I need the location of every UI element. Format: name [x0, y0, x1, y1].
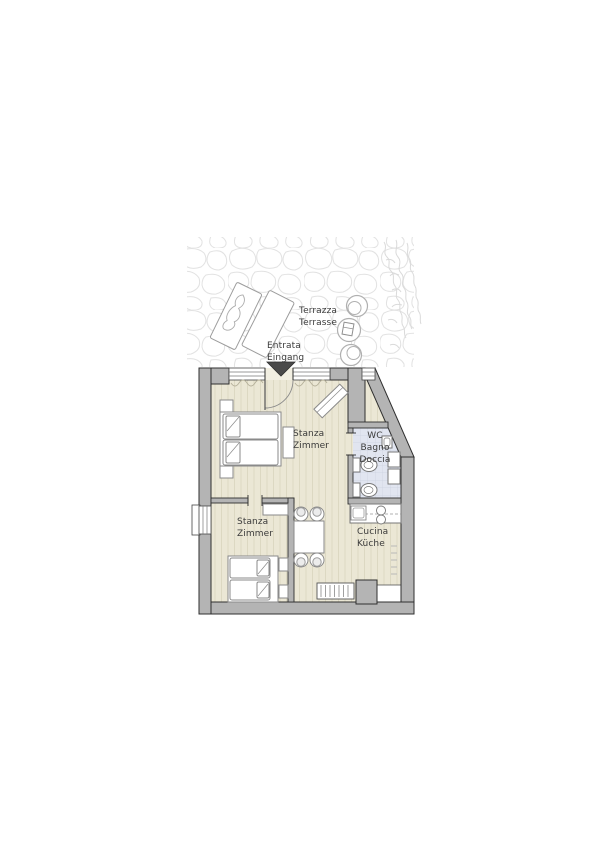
- dining-chair: [294, 553, 308, 567]
- bathroom-label: WC Bagno Doccia: [352, 430, 398, 466]
- terrace-label-line2: Terrasse: [299, 317, 337, 329]
- bathroom-label-line2: Bagno: [352, 442, 398, 454]
- kitchen-label: Cucina Küche: [357, 526, 388, 550]
- bedroom1-label: Stanza Zimmer: [293, 428, 329, 452]
- nightstand: [220, 466, 233, 478]
- wall-right: [401, 457, 414, 614]
- dining-chair: [310, 553, 324, 567]
- bed-double-main: [220, 400, 281, 478]
- nightstand: [279, 558, 288, 571]
- window-top-corner: [362, 368, 375, 380]
- terrace-label: Terrazza Terrasse: [299, 305, 337, 329]
- bedroom2-label-line2: Zimmer: [237, 528, 273, 540]
- wall-bedroom2-top-a: [211, 498, 248, 503]
- dining-chair: [294, 507, 308, 521]
- bidet: [353, 483, 377, 497]
- boiler-unit: [388, 469, 400, 484]
- nightstand: [220, 400, 233, 412]
- window-top-right: [293, 368, 330, 380]
- terrace-chair-2: [341, 345, 362, 366]
- dining-table: [294, 521, 324, 553]
- kitchen-counter: [350, 504, 401, 524]
- entrance-label-line2: Eingang: [267, 352, 304, 364]
- window-left-bedroom2: [192, 505, 211, 535]
- wall-left: [199, 368, 211, 614]
- entrance-label-line1: Entrata: [267, 340, 304, 352]
- terrace-chair-1: [347, 296, 368, 317]
- kitchen-label-line1: Cucina: [357, 526, 388, 538]
- wall-notch: [356, 580, 377, 604]
- nightstand: [279, 585, 288, 598]
- wall-bathroom-top: [348, 422, 388, 428]
- pillow: [226, 416, 240, 437]
- bedroom1-label-line1: Stanza: [293, 428, 329, 440]
- bathroom-label-line1: WC: [352, 430, 398, 442]
- bathroom-label-line3: Doccia: [352, 454, 398, 466]
- bedroom2-label-line1: Stanza: [237, 516, 273, 528]
- terrace-table: [338, 319, 361, 342]
- floor-plan-canvas: Terrazza Terrasse Entrata Eingang Stanza…: [0, 0, 606, 856]
- kitchen-sink: [351, 506, 366, 520]
- wall-bathroom-bottom: [348, 498, 401, 504]
- kitchen-label-line2: Küche: [357, 538, 388, 550]
- terrace-label-line1: Terrazza: [299, 305, 337, 317]
- floor-niche: [377, 585, 401, 602]
- window-top-left: [229, 368, 265, 380]
- dining-chair: [310, 507, 324, 521]
- pillow: [226, 442, 240, 463]
- bedroom1-label-line2: Zimmer: [293, 440, 329, 452]
- entrance-label: Entrata Eingang: [267, 340, 304, 364]
- radiator: [317, 583, 354, 599]
- bedroom2-label: Stanza Zimmer: [237, 516, 273, 540]
- wall-bottom: [199, 602, 414, 614]
- wall-bedroom2-right: [288, 498, 294, 602]
- dresser: [263, 504, 288, 515]
